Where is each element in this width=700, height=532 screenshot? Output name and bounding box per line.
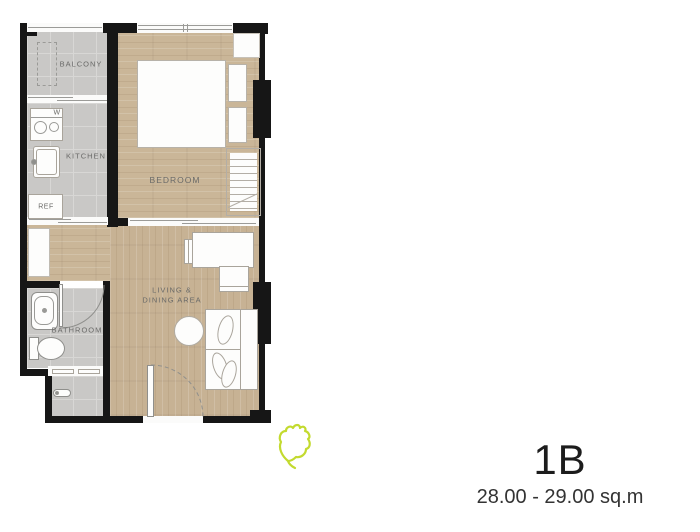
wall-bedroom-left xyxy=(107,23,118,227)
counter-line xyxy=(31,117,62,118)
wall-bottom-right-corner xyxy=(250,410,271,423)
entry-door-leaf xyxy=(147,365,154,417)
entry-opening xyxy=(143,416,203,423)
balcony-label: BALCONY xyxy=(60,60,103,69)
bathroom-sink-drain xyxy=(42,308,47,313)
toilet-bowl xyxy=(37,337,65,360)
bathroom-door-leaf xyxy=(59,284,63,327)
bed-pillow xyxy=(228,107,247,143)
wall-notch-vertical xyxy=(45,369,52,423)
bed-pillow xyxy=(228,64,247,102)
stove-burner xyxy=(34,121,47,134)
unit-name: 1B xyxy=(430,438,690,482)
round-table xyxy=(174,316,204,346)
stove-burner xyxy=(49,122,59,132)
slider-line xyxy=(130,220,198,221)
window-mullion xyxy=(183,24,184,32)
shower-door-panel xyxy=(52,369,74,374)
wall-bedroom-living-stub xyxy=(107,218,128,226)
slider-line xyxy=(57,100,107,101)
leaf-icon xyxy=(274,418,314,470)
slider-line xyxy=(182,223,256,224)
hall-cabinet xyxy=(28,228,50,277)
shower-head-dot xyxy=(55,391,59,395)
slider-line xyxy=(28,97,73,98)
kitchen-label: KITCHEN xyxy=(66,152,106,161)
shower-door-panel xyxy=(78,369,100,374)
desk-chair-bottom-back xyxy=(219,286,249,292)
kitchen-sink-basin xyxy=(36,149,57,175)
window-mullion xyxy=(187,24,188,32)
slider-line xyxy=(29,219,71,220)
wall-bathroom-right xyxy=(103,281,110,423)
sofa-seat-line xyxy=(206,349,240,350)
slider-line xyxy=(58,222,107,223)
desk-chair-left-back xyxy=(184,239,189,264)
desk xyxy=(192,232,254,268)
unit-info: 1B 28.00 - 29.00 sq.m xyxy=(430,438,690,512)
living-label-line1: LIVING & xyxy=(152,286,192,295)
living-label-line2: DINING AREA xyxy=(142,296,201,305)
kitchen-faucet xyxy=(31,159,37,165)
wall-bathroom-top xyxy=(20,281,60,288)
wall-bottom-left xyxy=(45,416,143,423)
window-line xyxy=(138,25,232,26)
balcony-railing-line xyxy=(28,27,102,28)
fridge-label: REF xyxy=(38,204,54,211)
bed xyxy=(137,60,226,148)
window-line xyxy=(138,29,232,30)
floor-plan-page: W REF BALCONY KITCHEN BEDROOM BATHROOM xyxy=(0,0,700,532)
unit-area: 28.00 - 29.00 sq.m xyxy=(430,482,690,512)
sofa-back-line xyxy=(240,310,241,389)
balcony-washer-space xyxy=(37,42,57,86)
column-bedroom xyxy=(253,80,271,138)
bedroom-label: BEDROOM xyxy=(150,175,201,185)
wall-left xyxy=(20,23,27,376)
bathroom-label: BATHROOM xyxy=(52,326,103,335)
bedroom-cabinet xyxy=(233,33,260,58)
washer-label: W xyxy=(53,110,60,117)
